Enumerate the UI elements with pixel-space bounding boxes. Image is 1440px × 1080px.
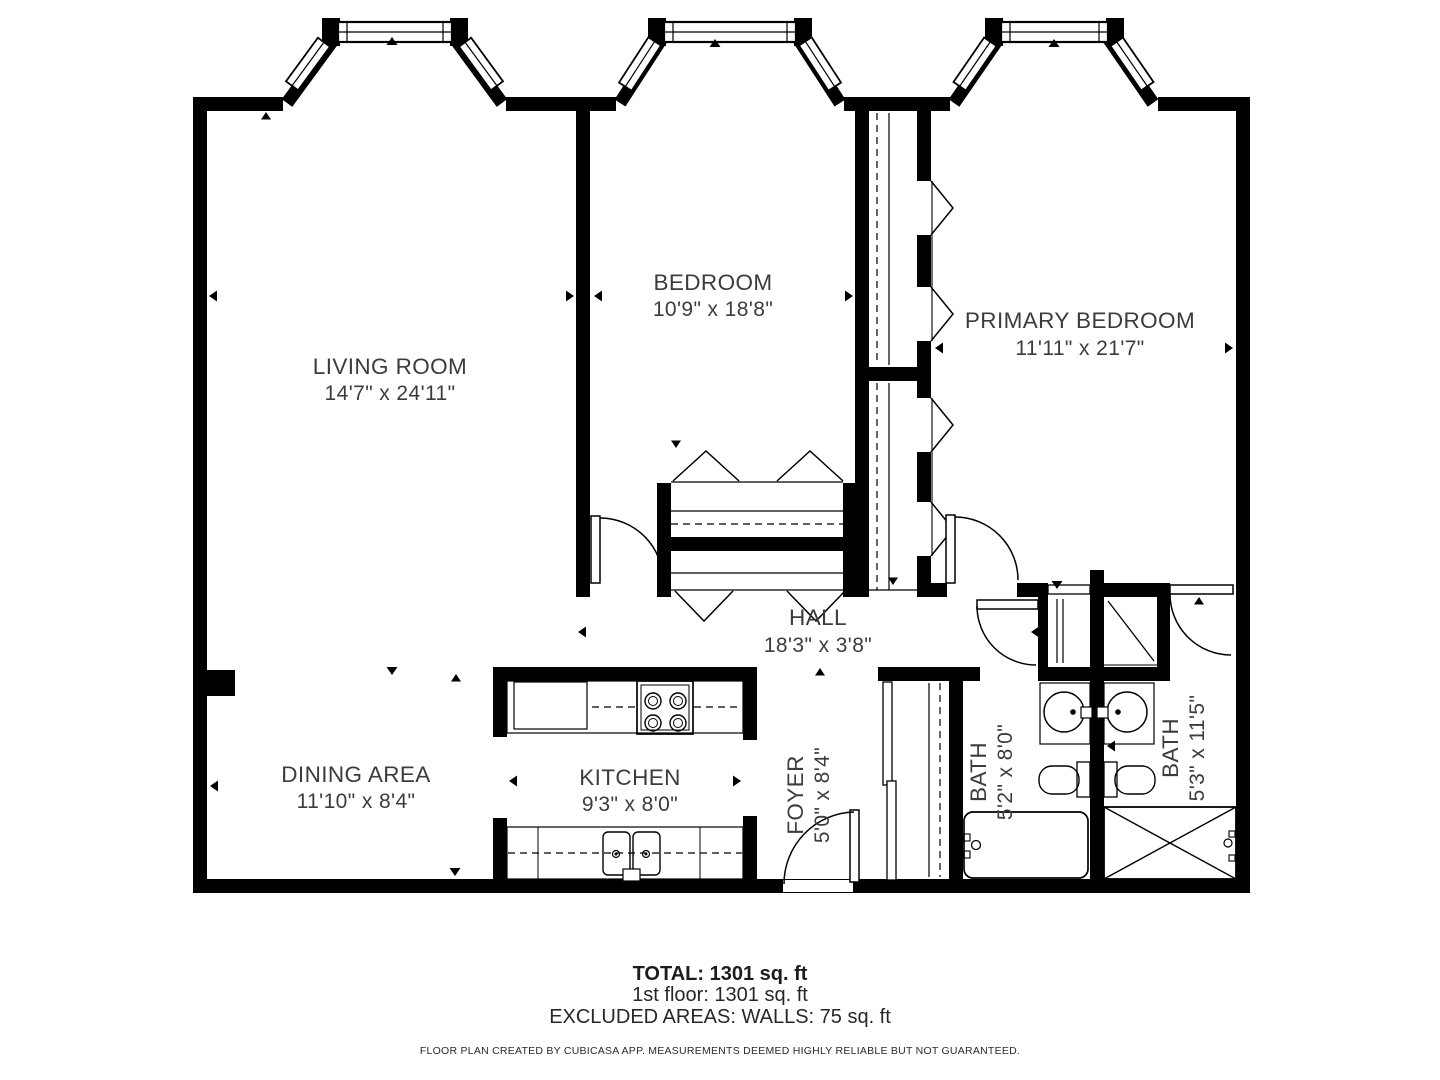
room-name: BEDROOM xyxy=(653,270,772,295)
summary-block: TOTAL: 1301 sq. ft 1st floor: 1301 sq. f… xyxy=(0,963,1440,1057)
shower-icon xyxy=(1104,807,1236,879)
washbasin-icon xyxy=(1040,683,1092,744)
kitchen-sink-icon xyxy=(603,832,660,881)
room-dims: 11'10" x 8'4" xyxy=(297,790,416,813)
door-leaf xyxy=(591,516,600,583)
door-leaf xyxy=(977,600,1038,609)
bedroom-closet xyxy=(671,451,843,524)
room-name: PRIMARY BEDROOM xyxy=(965,308,1195,333)
closet-door-icon xyxy=(1048,585,1090,594)
stove-icon xyxy=(637,681,693,734)
room-label-foyer: FOYER 5'0" x 8'4" xyxy=(783,747,834,843)
bath2-closet xyxy=(1104,601,1157,665)
doors xyxy=(591,515,1233,884)
bay-window-primary xyxy=(953,18,1153,103)
floor1-area-text: 1st floor: 1301 sq. ft xyxy=(0,985,1440,1007)
room-label-bath1: BATH 5'2" x 8'0" xyxy=(966,724,1017,820)
toilet-icon xyxy=(1039,762,1090,797)
room-dims: 14'7" x 24'11" xyxy=(325,382,456,405)
foyer-closet xyxy=(883,682,940,880)
room-label-bedroom: BEDROOM 10'9" x 18'8" xyxy=(653,270,773,321)
room-dims: 18'3" x 3'8" xyxy=(764,634,872,657)
bath1-door xyxy=(977,600,1038,665)
door-arc xyxy=(600,518,663,581)
room-dims: 9'3" x 8'0" xyxy=(582,793,678,816)
door-leaf xyxy=(850,810,859,882)
bathtub-icon xyxy=(963,812,1088,878)
room-label-kitchen: KITCHEN 9'3" x 8'0" xyxy=(579,765,681,816)
excluded-area-text: EXCLUDED AREAS: WALLS: 75 sq. ft xyxy=(0,1007,1440,1029)
measure-arrows xyxy=(209,37,1233,876)
room-name: BATH xyxy=(1158,718,1183,778)
room-name: HALL xyxy=(789,605,847,630)
sliding-door-icon xyxy=(887,781,896,880)
bay-window-living xyxy=(286,18,503,103)
room-label-dining: DINING AREA 11'10" x 8'4" xyxy=(281,762,430,813)
bath2-fixtures xyxy=(1097,683,1236,879)
closet-door-icon xyxy=(1108,601,1154,661)
room-dims: 5'0" x 8'4" xyxy=(811,747,834,843)
room-name: LIVING ROOM xyxy=(313,354,467,379)
door-arc xyxy=(955,517,1018,580)
door-arc xyxy=(977,606,1036,665)
entry-opening xyxy=(783,880,853,892)
door-leaf xyxy=(1170,585,1233,594)
room-dims: 11'11" x 21'7" xyxy=(1015,337,1144,360)
total-area-text: TOTAL: 1301 sq. ft xyxy=(0,963,1440,985)
floor-plan-drawing: LIVING ROOM 14'7" x 24'11" BEDROOM 10'9"… xyxy=(0,0,1440,950)
room-name: KITCHEN xyxy=(579,765,681,790)
bedroom-door xyxy=(591,516,663,583)
bath2-door xyxy=(1170,585,1233,655)
room-name: DINING AREA xyxy=(281,762,430,787)
linen-closet xyxy=(1048,585,1090,663)
washbasin-icon xyxy=(1097,683,1154,744)
room-label-hall: HALL 18'3" x 3'8" xyxy=(764,605,872,657)
floor-plan-page: LIVING ROOM 14'7" x 24'11" BEDROOM 10'9"… xyxy=(0,0,1440,1080)
room-dims: 10'9" x 18'8" xyxy=(653,298,773,321)
sliding-door-icon xyxy=(883,682,892,785)
refrigerator-icon xyxy=(514,682,587,729)
room-label-primary-bedroom: PRIMARY BEDROOM 11'11" x 21'7" xyxy=(965,308,1195,360)
toilet-icon xyxy=(1104,762,1155,797)
room-label-living: LIVING ROOM 14'7" x 24'11" xyxy=(313,354,467,405)
bay-window-bedroom xyxy=(619,18,841,103)
room-dims: 5'3" x 11'5" xyxy=(1186,695,1209,802)
room-name: BATH xyxy=(966,742,991,802)
room-dims: 5'2" x 8'0" xyxy=(994,724,1017,820)
door-leaf xyxy=(946,515,955,583)
room-label-bath2: BATH 5'3" x 11'5" xyxy=(1158,695,1209,802)
room-name: FOYER xyxy=(783,755,808,835)
primary-bedroom-door xyxy=(946,515,1018,583)
disclaimer-text: FLOOR PLAN CREATED BY CUBICASA APP. MEAS… xyxy=(0,1045,1440,1057)
